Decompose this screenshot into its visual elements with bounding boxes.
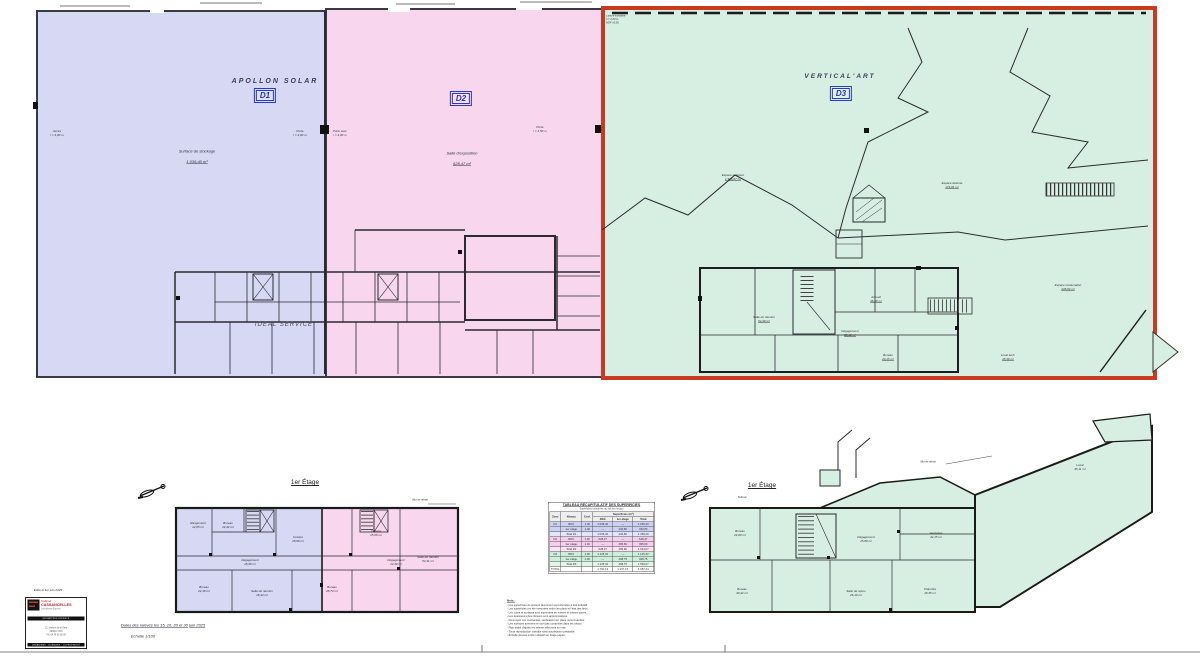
room-label: Vestiaires 32,15 m² [929,532,942,540]
stair-icon-fl1-right [796,514,836,558]
table-title: TABLEAU RÉCAPITULATIF DES SUPERFICIES [550,504,654,508]
room-label: Local tech.18,30 m² [1001,350,1016,362]
room-label: Dégagement 12,40 m² [387,559,404,567]
door-annotation: Porte l = 4,50 m [533,126,546,134]
notes-block: Nota : - Les superficies du présent docu… [507,599,642,638]
room-label: Dégagement 15,80 m² [857,536,874,544]
room-label-d2-hall: Salle d'exposition 628,47 m² [446,146,477,172]
plan-sheet: APOLLON SOLAR D1 D2 VERTICAL'ART D3 IDEA… [0,0,1200,659]
survey-dates-note: Dates des relevés les 15, 16, 20 et 30 j… [121,623,206,628]
compass-icon-right [681,487,708,501]
room-label: Salle de réunion 16,44 m² [251,590,273,598]
room-label: Cuisine 15,08 m² [370,530,382,538]
door-annotation: Porte sect. l = 4,00 m [333,130,347,138]
room-label: Local 35,11 m² [1074,464,1086,472]
door-annotation: Porte l = 3,00 m [293,130,306,138]
company-name-apollon-solar: APOLLON SOLAR [232,78,319,85]
room-label: Dégagement38,12 m² [841,326,858,338]
surveyor-title-block: Cabinet CASSANCELLES Géomètres-Experts G… [25,597,87,649]
zone-d2 [325,8,604,378]
logo-band-bottom: URBANISME · BORNAGE · COPROPRIÉTÉ [28,643,85,647]
room-label: Salle de réunion 52,31 m² [417,556,439,564]
logo-line3: Géomètres-Experts [41,607,72,610]
scale-note: Échelle 1/100 [131,634,155,639]
edited-note: Édité le 1er juin 2025 [34,589,62,593]
room-label: Bureau 28,73 m² [326,586,338,594]
floor-title-right: 1er Étage [748,482,776,489]
room-label: Salle de réunion52,40 m² [753,312,775,324]
zone-tag-d1: D1 [256,90,274,101]
room-label: Accueil46,80 m² [870,292,882,304]
room-label: Espace détente174,61 m² [942,178,963,190]
notes-title: Nota : [507,599,642,603]
wall-note-right: Mur en retrait [920,461,935,464]
door-annotation: Accès l = 4,00 m [50,130,63,138]
room-label: Bureau 14,32 m² [222,522,234,530]
area-summary-table: TABLEAU RÉCAPITULATIF DES SUPERFICIES Su… [548,502,655,574]
company-name-ideal-service: IDEAL SERVICE [255,322,313,328]
table-subtitle: Superficies mesurées au sol des locaux [550,508,654,511]
room-label: Espace restauration248,04 m² [1055,280,1082,292]
room-label: Bureau 30,42 m² [736,588,748,596]
table-row: TOTAL2 790,191 297,154 087,34 [550,567,654,572]
stair-icon-fl1-left [246,510,274,532]
room-label: Bureau 24,60 m² [734,530,746,538]
room-label: Cuisine 18,60 m² [292,536,304,544]
company-name-verticalart: VERTICAL'ART [804,73,875,80]
room-label: Dégagement 18,06 m² [241,559,258,567]
stair-icon-fl1-mid [360,510,388,532]
room-label: Bureau 22,18 m² [198,586,210,594]
room-label: Salle de repos 26,10 m² [846,590,865,598]
zone-d3-verticalart-highlighted [601,6,1157,380]
compass-icon-left [138,485,165,499]
site-corner-note: Clôture existante h = 2,00 m NGF +0,00 [606,15,625,25]
surveyor-logo-icon [28,600,40,611]
logo-address: 12, avenue de la Gare 69000 LYON Tél. 04… [28,627,85,637]
zone-tag-d2: D2 [452,93,470,104]
room-label: Bureau20,15 m² [882,350,894,362]
room-label: Chambre 18,35 m² [924,588,936,596]
room-label-d1-hall: Surface de stockage 1 036,40 m² [179,144,215,170]
zone-tag-d3: D3 [832,88,850,99]
room-label: Rangement 12,05 m² [190,522,206,530]
room-label: Espace extérieur1 936,67 m² [722,170,745,182]
wall-note-left: Mur en retrait [412,499,427,502]
col-header-zone: Zone [550,512,561,522]
col-header-niveau: Niveau [561,512,582,522]
floor-title-left: 1er Étage [291,479,319,486]
note-line: - Échelle donnée à titre indicatif sur t… [507,634,642,638]
room-label: Toiture [737,496,746,500]
col-header-coef: Coef. [582,512,593,522]
logo-band-top: GÉOMÈTRES EXPERTS [28,617,85,621]
